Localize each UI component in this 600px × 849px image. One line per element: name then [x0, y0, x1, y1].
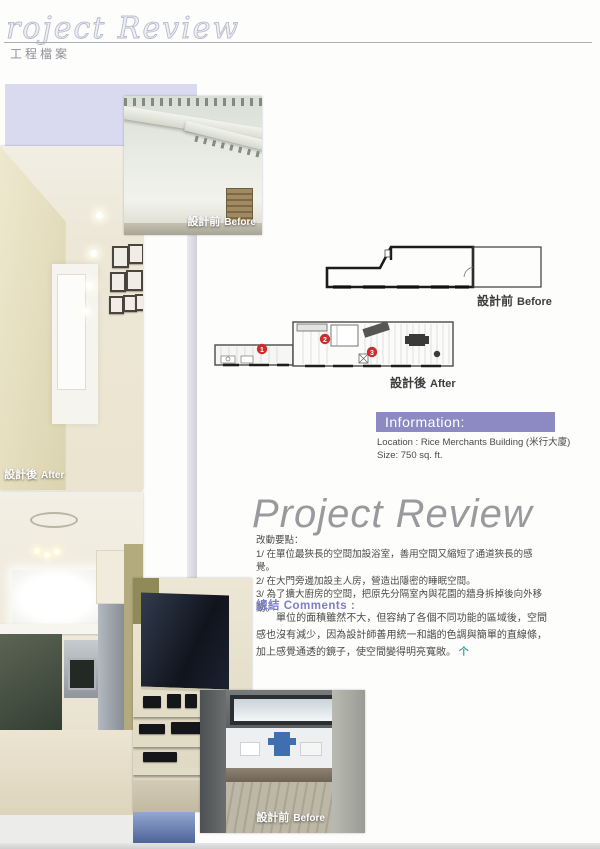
- page-header-subtitle: 工程檔案: [10, 45, 70, 62]
- comments-body: 單位的面積雖然不大，但容納了各個不同功能的區域後，空間感也沒有減少，因為設計師善…: [256, 610, 547, 661]
- picture-frame: [109, 296, 124, 314]
- ceiling-plate: [30, 512, 78, 528]
- label-cjk: 設計後: [390, 376, 426, 390]
- photo-garden-before: 設計前Before: [200, 690, 365, 833]
- label-en: After: [430, 378, 456, 390]
- oven-glass: [68, 658, 96, 690]
- photo-room-before: 設計前Before: [124, 96, 262, 235]
- label-en: Before: [517, 296, 552, 308]
- floorplan-before: [323, 241, 547, 293]
- point-item-2: 2/ 在大門旁邊加設主人房，營造出隱密的睡眠空間。: [256, 575, 548, 589]
- label-cjk: 設計前: [187, 216, 220, 228]
- pendant-bulb: [44, 552, 50, 558]
- water-tank: [240, 742, 260, 756]
- label-en: Before: [293, 813, 325, 824]
- label-en: Before: [224, 217, 256, 228]
- av-equipment: [139, 724, 165, 734]
- right-column: [332, 690, 365, 833]
- plan-marker-2: 2: [320, 334, 330, 344]
- tv-screen: [141, 592, 229, 692]
- svg-text:2: 2: [323, 337, 327, 344]
- plan-marker-1: 1: [257, 344, 267, 354]
- ceiling-truss: [124, 98, 262, 106]
- points-heading: 改動要點：: [256, 534, 548, 548]
- kitchen-counter: [0, 624, 100, 634]
- picture-frame: [110, 272, 126, 292]
- av-equipment: [185, 694, 197, 708]
- page-bottom-edge: [0, 843, 600, 849]
- page-header-script-title: roject Review: [6, 14, 240, 44]
- pendant-bulb: [54, 549, 60, 555]
- svg-text:1: 1: [260, 347, 264, 354]
- plan-label-after: 設計後After: [390, 374, 456, 391]
- av-equipment: [143, 696, 161, 708]
- plan-marker-3: 3: [367, 347, 377, 357]
- opening-sky: [230, 695, 342, 725]
- label-cjk: 設計後: [4, 469, 37, 481]
- point-item-1: 1/ 在單位最狹長的空間加設浴室，善用空間又縮短了通道狹長的感覺。: [256, 548, 548, 575]
- photo-hallway-after: 設計後After: [0, 146, 143, 490]
- picture-frame: [135, 294, 143, 311]
- plan-label-before: 設計前Before: [477, 292, 552, 309]
- kitchen-floor: [0, 730, 143, 815]
- ceiling-spotlight: [96, 212, 103, 219]
- photo-label-before: 設計前Before: [256, 809, 325, 825]
- information-location: Location : Rice Merchants Building (米行大廈…: [377, 436, 577, 449]
- information-heading-bar: Information:: [376, 412, 555, 432]
- label-cjk: 設計前: [477, 294, 513, 308]
- ceiling-spotlight: [86, 282, 93, 289]
- information-size: Size: 750 sq. ft.: [377, 449, 577, 462]
- blue-pump-arm: [268, 738, 296, 745]
- information-heading: Information:: [385, 414, 465, 430]
- picture-frame: [126, 270, 143, 291]
- ceiling-spotlight: [90, 250, 97, 257]
- svg-text:3: 3: [370, 350, 374, 357]
- magazine-page: roject Review 工程檔案 設計後After 設計前Before: [0, 0, 600, 849]
- comments-text: 單位的面積雖然不大，但容納了各個不同功能的區域後，空間感也沒有減少，因為設計師善…: [256, 613, 547, 658]
- kitchen-island: [0, 634, 62, 730]
- water-tank: [300, 742, 322, 756]
- corridor-door: [57, 274, 86, 390]
- ceiling-spotlight: [82, 308, 89, 315]
- photo-kitchen-after: [0, 492, 143, 815]
- kitchen-window: [12, 570, 100, 626]
- header-rule: [4, 42, 592, 43]
- photo-label-after: 設計後After: [4, 466, 64, 482]
- oven: [64, 640, 98, 698]
- av-equipment: [167, 694, 181, 708]
- floorplan-after: 1 2 3: [213, 312, 458, 374]
- parapet-wall: [226, 768, 332, 782]
- article-title: Project Review: [252, 494, 533, 534]
- article-end-mark: 个: [459, 647, 469, 658]
- label-en: After: [41, 470, 64, 481]
- fridge: [98, 604, 124, 738]
- picture-frame: [112, 246, 129, 268]
- tiled-floor: [226, 782, 332, 833]
- av-equipment: [171, 722, 201, 734]
- av-equipment: [143, 752, 177, 762]
- left-column: [200, 690, 226, 833]
- picture-frame: [128, 244, 143, 264]
- photo-label-before: 設計前Before: [187, 213, 256, 229]
- pendant-bulb: [34, 548, 40, 554]
- label-cjk: 設計前: [256, 812, 289, 824]
